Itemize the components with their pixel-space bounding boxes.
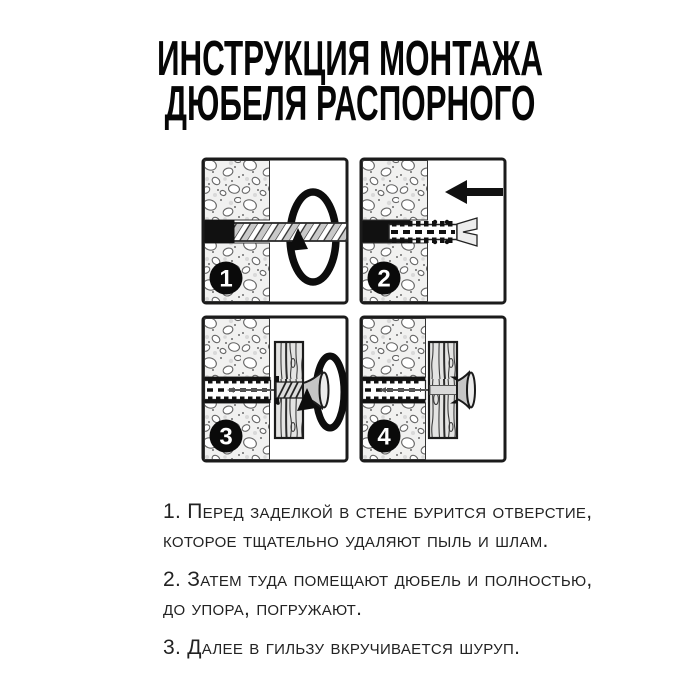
instruction-line: до упора, погружают. [163, 594, 623, 623]
step-badge: 2 [368, 262, 401, 295]
drill-bit [227, 223, 347, 241]
panel-step-1-drilling: 1 [201, 157, 349, 305]
step-number: 1 [219, 266, 232, 293]
step-number: 3 [219, 424, 232, 451]
steps-diagram: 1 [201, 157, 507, 463]
step-number: 2 [377, 266, 390, 293]
panel-step-3-screwing: 3 [201, 315, 349, 463]
title-line-1: ИНСТРУКЦИЯ МОНТАЖА [126, 37, 574, 82]
instruction-poster: ИНСТРУКЦИЯ МОНТАЖА ДЮБЕЛЯ РАСПОРНОГО 1 [0, 0, 700, 700]
step-badge: 4 [368, 420, 401, 453]
countersink-mark [275, 376, 279, 382]
screw-threads [276, 382, 304, 398]
dowel [389, 218, 477, 246]
step-badge: 1 [210, 262, 243, 295]
screw-channel [430, 386, 457, 395]
page-title: ИНСТРУКЦИЯ МОНТАЖА ДЮБЕЛЯ РАСПОРНОГО [126, 37, 574, 127]
instruction-line: 1. Перед заделкой в стене бурится отверс… [163, 497, 623, 526]
panel-step-2-insert-dowel: 2 [359, 157, 507, 305]
instruction-line: 2. Затем туда помещают дюбель и полность… [163, 565, 623, 594]
step-number: 4 [377, 424, 391, 451]
instruction-line: которое тщательно удаляют пыль и шлам. [163, 526, 623, 555]
instruction-step-3: 3. Далее в гильзу вкручивается шуруп. [163, 633, 623, 662]
instruction-line: 3. Далее в гильзу вкручивается шуруп. [163, 633, 623, 662]
countersink-mark [275, 398, 279, 404]
title-line-2: ДЮБЕЛЯ РАСПОРНОГО [126, 82, 574, 127]
step-badge: 3 [210, 420, 243, 453]
instruction-step-1: 1. Перед заделкой в стене бурится отверс… [163, 497, 623, 555]
instructions-list: 1. Перед заделкой в стене бурится отверс… [163, 497, 623, 672]
instruction-step-2: 2. Затем туда помещают дюбель и полность… [163, 565, 623, 623]
drilled-hole [205, 220, 235, 243]
panel-step-4-finished: 4 [359, 315, 507, 463]
